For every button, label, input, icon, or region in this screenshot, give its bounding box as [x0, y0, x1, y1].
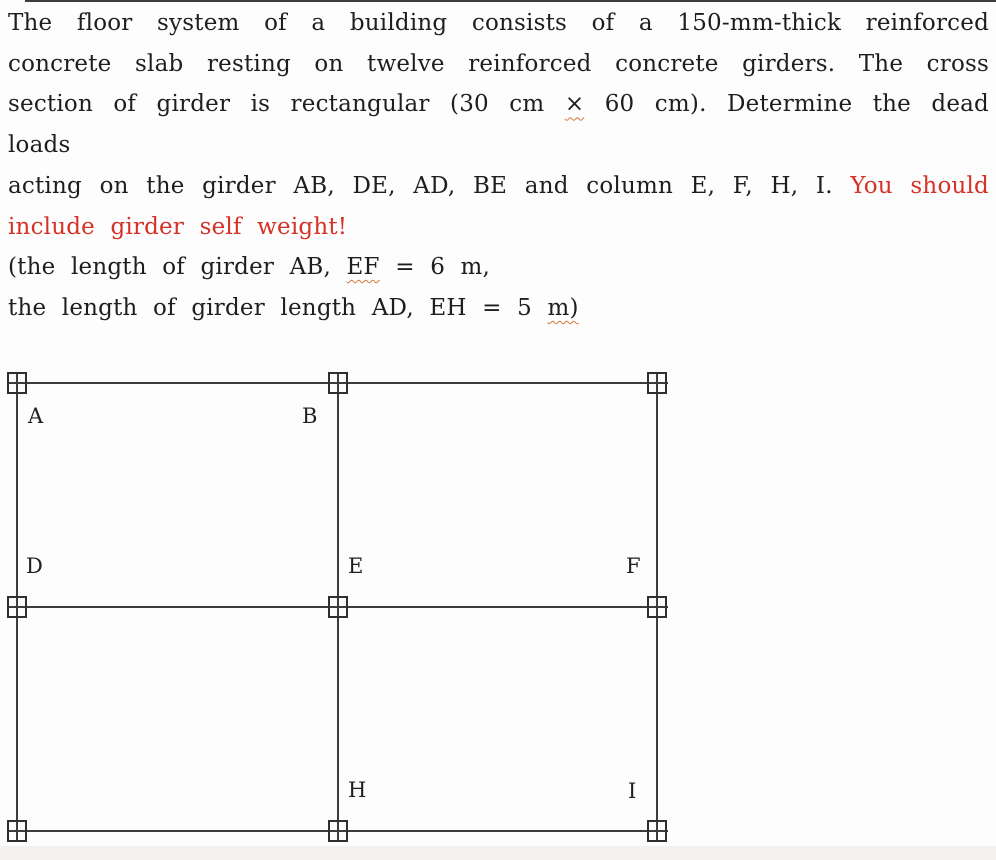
column-marker-A [7, 372, 27, 394]
document-page: The floor system of a building consists … [0, 0, 996, 860]
problem-line-2: concrete slab resting on twelve reinforc… [8, 44, 989, 85]
problem-text-segment: The floor system of a building consists … [8, 10, 989, 36]
column-marker-B [328, 372, 348, 394]
m-paren-spellcheck: m) [547, 295, 578, 321]
node-label-F: F [626, 555, 641, 577]
column-marker-top-right [647, 372, 667, 394]
problem-text-red-segment: You should [850, 173, 989, 199]
node-label-E: E [348, 555, 363, 577]
ef-spellcheck: EF [347, 254, 380, 280]
node-label-H: H [348, 779, 366, 801]
problem-text-segment: the length of girder length AD, EH = 5 [8, 295, 532, 321]
node-label-D: D [26, 555, 43, 577]
node-label-I: I [628, 780, 636, 802]
problem-text-segment: section of girder is rectangular (30 cm [8, 91, 544, 117]
problem-text-segment: = 6 m, [395, 254, 490, 280]
problem-text-segment: concrete slab resting on twelve reinforc… [8, 51, 989, 77]
problem-line-5: include girder self weight! [8, 207, 989, 248]
column-marker-F [647, 596, 667, 618]
times-sign-spellcheck: × [565, 91, 584, 117]
problem-text-red-segment: include girder self weight! [8, 214, 347, 240]
top-crop-line [25, 0, 996, 2]
node-label-B: B [302, 405, 317, 427]
problem-text-segment: acting on the girder AB, DE, AD, BE and … [8, 173, 833, 199]
column-marker-H [328, 820, 348, 842]
problem-line-4: acting on the girder AB, DE, AD, BE and … [8, 166, 989, 207]
bottom-strip [0, 846, 996, 860]
problem-line-3: section of girder is rectangular (30 cm … [8, 84, 989, 165]
problem-text-segment: (the length of girder AB, [8, 254, 331, 280]
problem-line-1: The floor system of a building consists … [8, 3, 989, 44]
column-marker-D [7, 596, 27, 618]
column-marker-I [647, 820, 667, 842]
column-marker-E [328, 596, 348, 618]
problem-text: The floor system of a building consists … [0, 3, 996, 329]
problem-line-7: the length of girder length AD, EH = 5 m… [8, 288, 989, 329]
problem-line-6: (the length of girder AB, EF = 6 m, [8, 247, 989, 288]
node-label-A: A [28, 405, 43, 427]
column-marker-bottom-left [7, 820, 27, 842]
